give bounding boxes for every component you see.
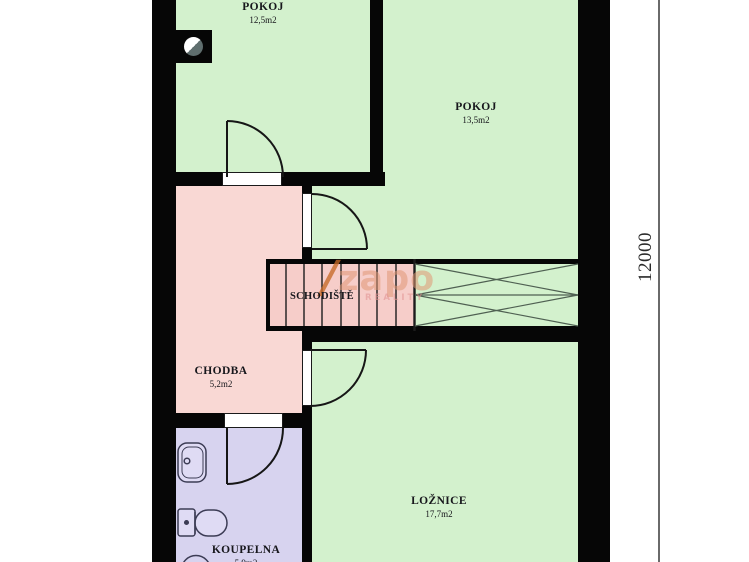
room-area: 5,9m2 — [212, 558, 280, 562]
sink-fixture — [178, 443, 206, 482]
room-name: SCHODIŠTĚ — [290, 291, 354, 303]
door-swing-loznice — [310, 350, 366, 406]
room-name: CHODBA — [195, 365, 248, 378]
toilet-fixture — [178, 509, 227, 536]
label-chodba: CHODBA 5,2m2 — [195, 365, 248, 390]
room-name: POKOJ — [242, 1, 284, 14]
room-name: POKOJ — [455, 101, 497, 114]
label-loznice: LOŽNICE 17,7m2 — [411, 495, 467, 520]
room-area: 17,7m2 — [411, 509, 467, 519]
door-swing-pokoj2 — [312, 194, 367, 249]
dimension-line — [658, 0, 660, 562]
door-swing-koupelna — [227, 428, 283, 484]
floor-plan-canvas: / zapo REALITY POKOJ 12,5m2 POKOJ 13,5m2… — [0, 0, 749, 562]
label-koupelna: KOUPELNA 5,9m2 — [212, 544, 280, 562]
label-pokoj-1: POKOJ 12,5m2 — [242, 1, 284, 26]
room-area: 13,5m2 — [455, 115, 497, 125]
label-pokoj-2: POKOJ 13,5m2 — [455, 101, 497, 126]
label-schodiste: SCHODIŠTĚ — [290, 291, 354, 303]
room-name: KOUPELNA — [212, 544, 280, 557]
room-name: LOŽNICE — [411, 495, 467, 508]
room-area: 12,5m2 — [242, 15, 284, 25]
staircase-void-cross — [415, 264, 578, 326]
room-area: 5,2m2 — [195, 379, 248, 389]
dimension-label: 12000 — [636, 222, 656, 292]
door-swing-pokoj1 — [227, 121, 283, 177]
bathtub-fixture-partial — [182, 556, 211, 562]
